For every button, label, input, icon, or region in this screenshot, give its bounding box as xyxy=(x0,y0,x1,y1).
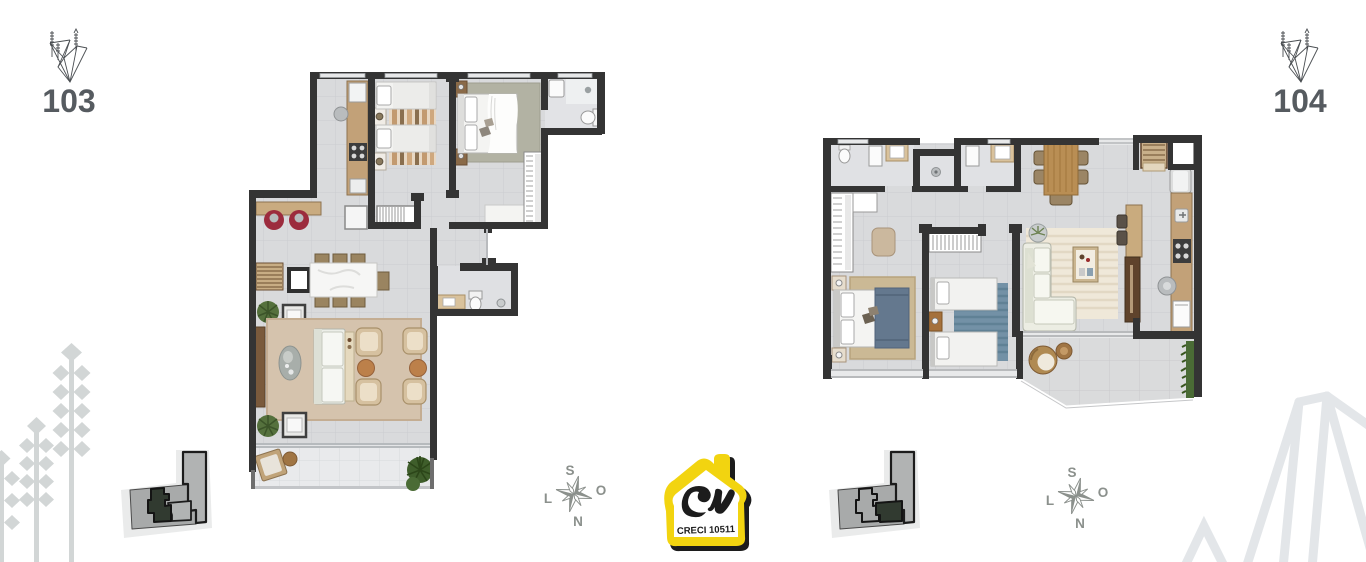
svg-text:103: 103 xyxy=(42,83,95,119)
svg-text:S: S xyxy=(1067,465,1076,480)
svg-text:104: 104 xyxy=(1273,83,1327,119)
svg-text:O: O xyxy=(1098,485,1109,500)
svg-text:L: L xyxy=(1046,493,1054,508)
svg-text:L: L xyxy=(544,491,552,506)
svg-text:O: O xyxy=(596,483,607,498)
svg-text:N: N xyxy=(1075,516,1085,531)
svg-text:CRECI 10511: CRECI 10511 xyxy=(677,524,736,537)
svg-text:N: N xyxy=(573,514,583,529)
svg-text:S: S xyxy=(565,463,574,478)
